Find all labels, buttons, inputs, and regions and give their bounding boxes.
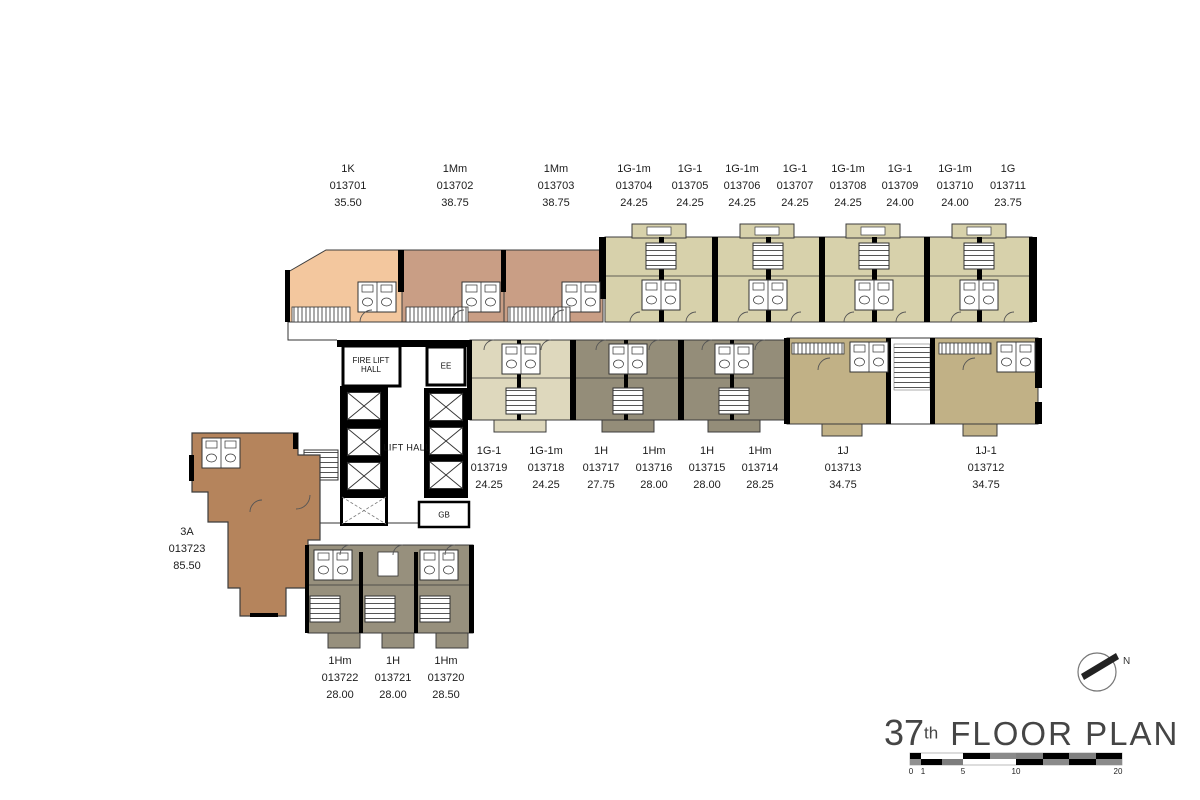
compass-icon (1078, 653, 1119, 691)
unit-number: 013702 (437, 178, 474, 195)
unit-area: 34.75 (825, 477, 862, 494)
unit-type: 1G-1m (528, 443, 565, 460)
stairwell-treads (894, 344, 930, 390)
unit-type: 1Hm (636, 443, 673, 460)
bathroom-icon (749, 280, 787, 310)
page-title: 37thFLOOR PLAN (884, 712, 1179, 754)
balcony-bumps-bottom (328, 633, 468, 648)
unit-type: 1G-1 (777, 161, 814, 178)
unit-type: 1Mm (538, 161, 575, 178)
ee-label: EE (441, 362, 452, 371)
fire-lift-hall-label: FIRE LIFT HALL (353, 356, 390, 374)
lift-hall-label: LIFT HALL (384, 444, 431, 453)
lift-shaft-icon (429, 393, 463, 421)
unit-type: 1G-1m (616, 161, 653, 178)
stair-icon (310, 596, 340, 622)
lift-shaft-icon (429, 461, 463, 489)
bathroom-icon (855, 280, 893, 310)
scale-tick-1: 1 (921, 767, 925, 776)
unit-label-013712: 1J-1 013712 34.75 (968, 443, 1005, 494)
unit-number: 013723 (169, 541, 206, 558)
unit-number: 013705 (672, 178, 709, 195)
unit-type: 1H (689, 443, 726, 460)
unit-area: 28.00 (689, 477, 726, 494)
unit-type: 1Hm (742, 443, 779, 460)
lift-shaft-icon (347, 392, 381, 420)
stair-icon (365, 596, 395, 622)
stair-icon (859, 243, 889, 269)
bathroom-icon (850, 342, 888, 372)
scale-tick-0: 0 (909, 767, 913, 776)
bathroom-icon (202, 438, 240, 468)
scale-tick-20: 20 (1114, 767, 1123, 776)
unit-area: 28.25 (742, 477, 779, 494)
unit-area: 24.25 (616, 195, 653, 212)
unit-area: 24.25 (471, 477, 508, 494)
unit-area: 28.00 (375, 687, 412, 704)
unit-label-013715: 1H 013715 28.00 (689, 443, 726, 494)
unit-label-013710: 1G-1m 013710 24.00 (937, 161, 974, 212)
unit-area: 24.25 (724, 195, 761, 212)
top-unit-band (285, 224, 1037, 322)
unit-number: 013704 (616, 178, 653, 195)
unit-label-013713: 1J 013713 34.75 (825, 443, 862, 494)
bathroom-icon (314, 550, 352, 580)
floor-suffix: th (924, 724, 938, 743)
unit-number: 013710 (937, 178, 974, 195)
unit-area: 35.50 (330, 195, 367, 212)
unit-label-013703: 1Mm 013703 38.75 (538, 161, 575, 212)
unit-label-013707: 1G-1 013707 24.25 (777, 161, 814, 212)
unit-label-013718: 1G-1m 013718 24.25 (528, 443, 565, 494)
unit-area: 38.75 (538, 195, 575, 212)
title-text: FLOOR PLAN (950, 715, 1179, 752)
balcony-hatch (292, 307, 570, 322)
unit-label-013706: 1G-1m 013706 24.25 (724, 161, 761, 212)
lift-shaft-icon (429, 427, 463, 455)
unit-label-013722: 1Hm 013722 28.00 (322, 653, 359, 704)
unit-number: 013706 (724, 178, 761, 195)
unit-label-013702: 1Mm 013702 38.75 (437, 161, 474, 212)
unit-type: 1Hm (428, 653, 465, 670)
bathroom-icon (997, 342, 1035, 372)
stair-icon (719, 388, 749, 414)
stair-icon (964, 243, 994, 269)
unit-type: 1K (330, 161, 367, 178)
unit-label-013717: 1H 013717 27.75 (583, 443, 620, 494)
unit-number: 013722 (322, 670, 359, 687)
unit-number: 013703 (538, 178, 575, 195)
unit-area: 24.25 (830, 195, 867, 212)
unit-area: 28.00 (636, 477, 673, 494)
unit-number: 013701 (330, 178, 367, 195)
unit-area: 85.50 (169, 558, 206, 575)
lift-shaft-icon (347, 462, 381, 490)
unit-area: 34.75 (968, 477, 1005, 494)
unit-type: 1G-1 (471, 443, 508, 460)
middle-unit-band (467, 338, 1042, 436)
unit-number: 013720 (428, 670, 465, 687)
unit-type: 1G-1m (830, 161, 867, 178)
unit-area: 24.00 (937, 195, 974, 212)
unit-number: 013717 (583, 460, 620, 477)
scale-tick-10: 10 (1012, 767, 1021, 776)
unit-type: 1Hm (322, 653, 359, 670)
unit-area: 23.75 (990, 195, 1026, 212)
unit-type: 1G-1 (882, 161, 919, 178)
unit-number: 013716 (636, 460, 673, 477)
unit-area: 24.25 (777, 195, 814, 212)
unit-type: 1G (990, 161, 1026, 178)
unit-number: 013714 (742, 460, 779, 477)
gb-label: GB (438, 511, 450, 520)
lift-shaft-icon (347, 428, 381, 456)
unit-label-013701: 1K 013701 35.50 (330, 161, 367, 212)
north-label: N (1123, 656, 1130, 667)
bathroom-icon (609, 344, 647, 374)
unit-type: 1H (583, 443, 620, 460)
bathroom-icon (642, 280, 680, 310)
floor-plan-drawing (0, 0, 1200, 800)
stair-icon (420, 596, 450, 622)
scale-bar (910, 753, 1122, 765)
north-needle (1081, 653, 1119, 680)
unit-number: 013718 (528, 460, 565, 477)
unit-label-013714: 1Hm 013714 28.25 (742, 443, 779, 494)
bottom-unit-band (305, 545, 474, 648)
unit-number: 013707 (777, 178, 814, 195)
unit-type: 1G-1m (937, 161, 974, 178)
unit-number: 013715 (689, 460, 726, 477)
scale-tick-5: 5 (961, 767, 965, 776)
unit-area: 27.75 (583, 477, 620, 494)
bathroom-icon (960, 280, 998, 310)
floor-number: 37 (884, 712, 924, 753)
unit-type: 1G-1m (724, 161, 761, 178)
unit-type: 1J-1 (968, 443, 1005, 460)
unit-type: 3A (169, 524, 206, 541)
bathroom-icon (715, 344, 753, 374)
unit-number: 013719 (471, 460, 508, 477)
unit-label-013711: 1G 013711 23.75 (990, 161, 1026, 212)
unit-label-013705: 1G-1 013705 24.25 (672, 161, 709, 212)
stair-icon (506, 388, 536, 414)
unit-number: 013721 (375, 670, 412, 687)
bathroom-icon (358, 282, 396, 312)
unit-area: 24.25 (672, 195, 709, 212)
stair-icon (613, 388, 643, 414)
unit-label-013723: 3A 013723 85.50 (169, 524, 206, 575)
unit-area: 28.00 (322, 687, 359, 704)
unit-label-013716: 1Hm 013716 28.00 (636, 443, 673, 494)
unit-type: 1H (375, 653, 412, 670)
service-shaft (342, 497, 386, 524)
unit-number: 013711 (990, 178, 1026, 195)
unit-label-013719: 1G-1 013719 24.25 (471, 443, 508, 494)
unit-number: 013709 (882, 178, 919, 195)
unit-area: 24.00 (882, 195, 919, 212)
balcony-bumps-top (632, 224, 1006, 238)
stair-icon (646, 243, 676, 269)
unit-number: 013712 (968, 460, 1005, 477)
unit-number: 013708 (830, 178, 867, 195)
bathroom-icon (420, 550, 458, 580)
unit-3a-group (189, 433, 320, 617)
unit-area: 24.25 (528, 477, 565, 494)
unit-type: 1Mm (437, 161, 474, 178)
stair-icon (753, 243, 783, 269)
unit-label-013708: 1G-1m 013708 24.25 (830, 161, 867, 212)
floor-plan-page: 1K 013701 35.50 1Mm 013702 38.75 1Mm 013… (0, 0, 1200, 800)
unit-label-013720: 1Hm 013720 28.50 (428, 653, 465, 704)
unit-area: 38.75 (437, 195, 474, 212)
unit-label-013709: 1G-1 013709 24.00 (882, 161, 919, 212)
unit-number: 013713 (825, 460, 862, 477)
unit-area: 28.50 (428, 687, 465, 704)
unit-label-013721: 1H 013721 28.00 (375, 653, 412, 704)
bathroom-icon (502, 344, 540, 374)
unit-label-013704: 1G-1m 013704 24.25 (616, 161, 653, 212)
unit-type: 1J (825, 443, 862, 460)
unit-type: 1G-1 (672, 161, 709, 178)
